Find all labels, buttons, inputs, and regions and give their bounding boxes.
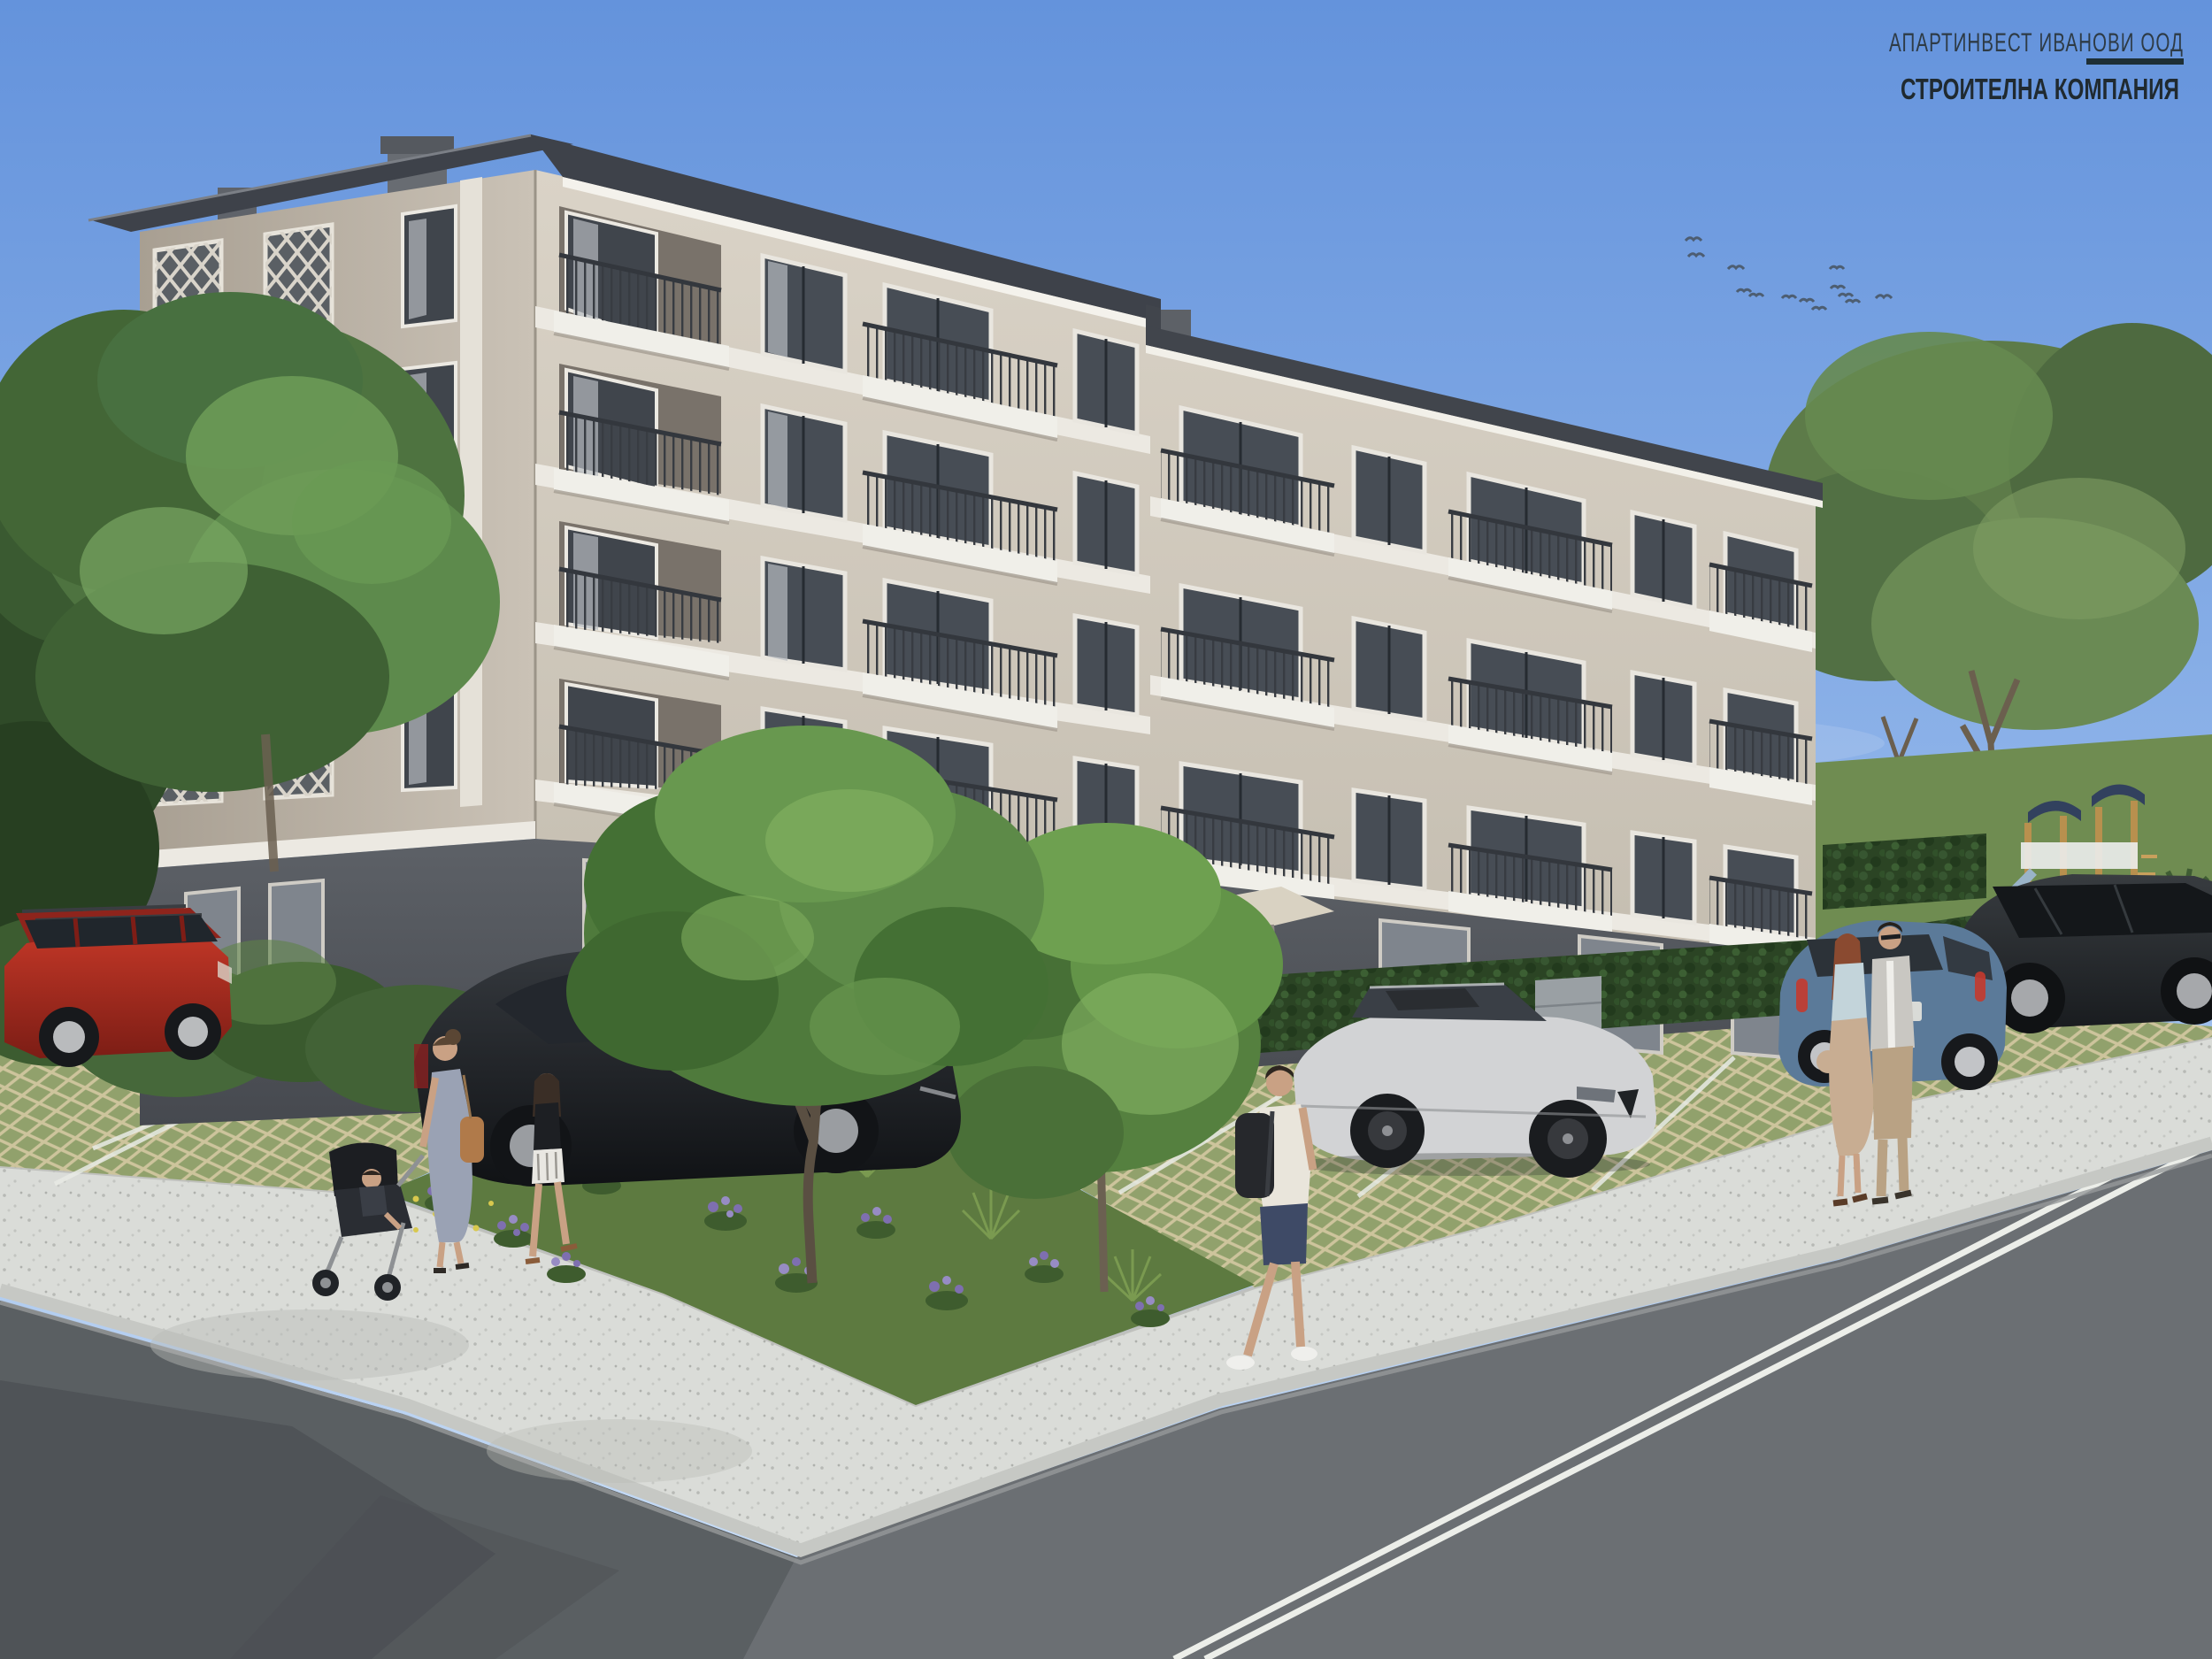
tall-windows xyxy=(1354,448,1425,889)
shorts xyxy=(1260,1203,1308,1265)
taillight xyxy=(1975,972,1985,1002)
handbag xyxy=(1816,1050,1839,1073)
sidewalk-dapple xyxy=(150,1310,469,1380)
red-suv xyxy=(4,906,232,1067)
scene-svg: АПАРТИНВЕСТ ИВАНОВИ ООД СТРОИТЕЛНА КОМПА… xyxy=(0,0,2212,1659)
wheel-rim xyxy=(2177,973,2212,1009)
wheel-rim xyxy=(53,1021,85,1053)
wheel-rim xyxy=(1955,1047,1985,1077)
top xyxy=(1832,963,1867,1021)
sunroof xyxy=(1386,988,1479,1010)
sneaker xyxy=(1226,1356,1255,1370)
balcony-stack xyxy=(1161,408,1334,906)
wheel-rim xyxy=(2011,979,2048,1017)
pants xyxy=(1872,1046,1913,1140)
company-tagline: СТРОИТЕЛНА КОМПАНИЯ xyxy=(1901,73,2179,105)
narrow-windows xyxy=(1632,512,1694,923)
skirt xyxy=(1829,1018,1874,1156)
car-glass xyxy=(1993,883,2212,938)
tank-top xyxy=(534,1102,561,1150)
balcony-stack xyxy=(1448,474,1612,936)
taillight xyxy=(1796,979,1808,1012)
taillight xyxy=(414,1044,428,1088)
sunglasses xyxy=(1881,936,1901,938)
sneaker xyxy=(1291,1347,1317,1361)
architectural-render: АПАРТИНВЕСТ ИВАНОВИ ООД СТРОИТЕЛНА КОМПА… xyxy=(0,0,2212,1659)
sidewalk-dapple xyxy=(487,1419,752,1483)
shoulder-bag xyxy=(460,1117,484,1163)
wheel-rim xyxy=(814,1109,858,1153)
watermark-divider xyxy=(2086,58,2184,65)
balcony-stack xyxy=(1709,534,1812,960)
background-hedge xyxy=(1823,833,1986,910)
company-name: АПАРТИНВЕСТ ИВАНОВИ ООД xyxy=(1889,28,2184,58)
wheel-rim xyxy=(178,1017,208,1047)
playground-guard-panel xyxy=(2021,842,2138,869)
